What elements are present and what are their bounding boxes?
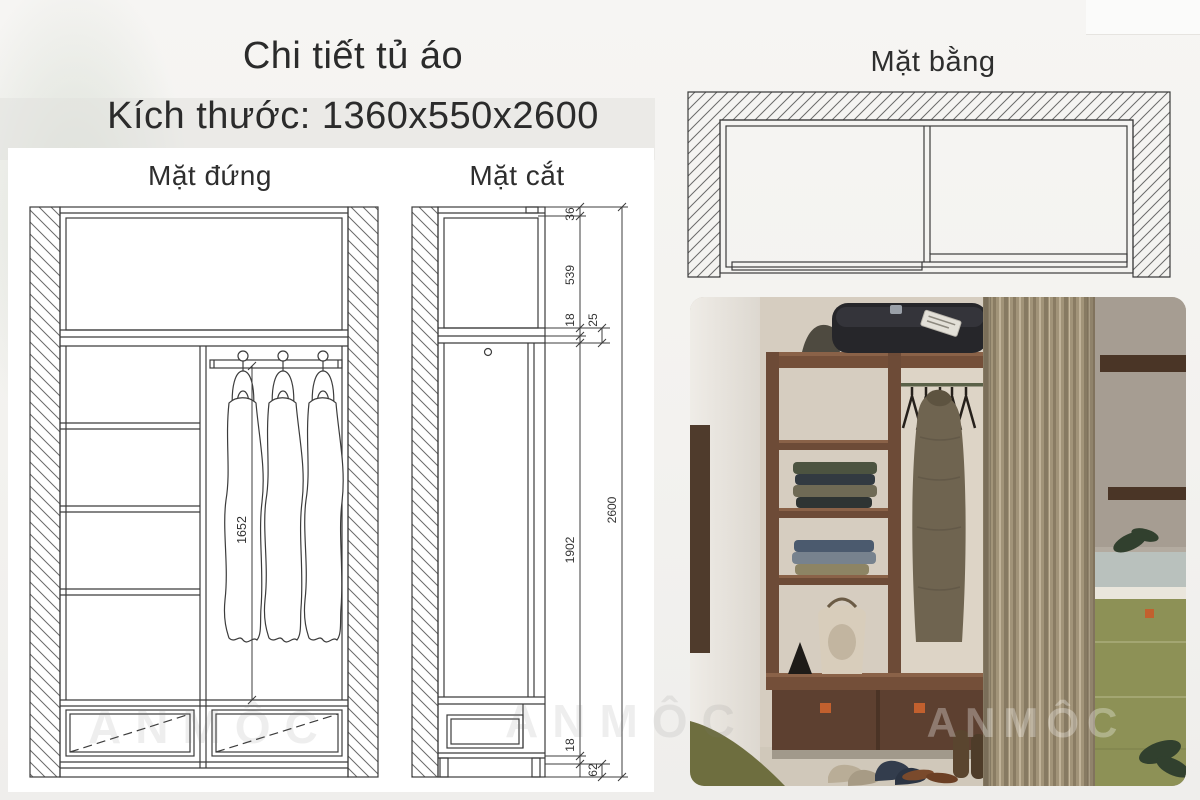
dim-label-overall-height: 2600 bbox=[605, 496, 619, 523]
counter-top bbox=[1089, 587, 1186, 599]
hangers-with-clothes bbox=[224, 351, 343, 642]
dim-label-top-rail: 36 bbox=[563, 207, 577, 221]
elevation-drawing: 1652 bbox=[20, 200, 380, 785]
dim-label-hanging-height: 1652 bbox=[235, 516, 249, 544]
elevation-carcass bbox=[60, 207, 348, 777]
drawing-watermark-left: ANMÔC bbox=[88, 700, 332, 754]
dim-label-main-compartment: 1902 bbox=[563, 536, 577, 563]
drawer-handle-left bbox=[820, 703, 831, 713]
section-carcass bbox=[438, 207, 545, 777]
dim-label-shelf-top: 18 bbox=[563, 313, 577, 327]
drawing-watermark-right: ANMÔC bbox=[505, 694, 749, 748]
plan-sliding-doors bbox=[732, 254, 1127, 270]
suitcase bbox=[832, 303, 988, 353]
wall-shelf-upper bbox=[1100, 355, 1186, 372]
title-block: Chi tiết tủ áo Kích thước: 1360x550x2600 bbox=[43, 26, 663, 146]
hanging-jacket bbox=[912, 390, 965, 642]
elevation-shelves bbox=[60, 423, 200, 595]
dim-label-gap: 25 bbox=[586, 313, 600, 327]
section-dimension-labels: 36 539 18 25 1902 18 62 2600 bbox=[563, 207, 619, 777]
section-wall-hatch bbox=[412, 207, 438, 777]
dim-label-base: 62 bbox=[586, 763, 600, 777]
section-door bbox=[444, 343, 534, 697]
section-upper-cabinet bbox=[438, 218, 545, 343]
section-view-label: Mặt cắt bbox=[417, 160, 617, 192]
cabinet-handle bbox=[1145, 609, 1154, 618]
suitcase-handle bbox=[890, 305, 902, 314]
page-title: Chi tiết tủ áo bbox=[43, 26, 663, 86]
door-handle bbox=[485, 349, 492, 356]
clothes-rod bbox=[901, 383, 989, 387]
drawer-handle-right bbox=[914, 703, 925, 713]
dim-label-upper-compartment: 539 bbox=[563, 265, 577, 285]
plan-partition bbox=[924, 126, 930, 262]
plan-view-label: Mặt bằng bbox=[833, 46, 1033, 79]
background-frame bbox=[1086, 0, 1200, 35]
wardrobe-photo: ANMÔC bbox=[690, 297, 1186, 786]
elevation-upper-cabinet bbox=[60, 218, 348, 346]
plan-drawing bbox=[680, 85, 1190, 285]
page-dimensions: Kích thước: 1360x550x2600 bbox=[43, 86, 663, 146]
elevation-view-label: Mặt đứng bbox=[110, 160, 310, 192]
photo-watermark: ANMÔC bbox=[927, 698, 1126, 746]
plan-carcass bbox=[720, 120, 1133, 273]
wardrobe-detail-sheet: Chi tiết tủ áo Kích thước: 1360x550x2600… bbox=[0, 0, 1200, 800]
wall-shelf-lower bbox=[1108, 487, 1186, 500]
side-wood-panel bbox=[690, 425, 710, 653]
wardrobe-render: ANMÔC bbox=[690, 297, 1186, 786]
